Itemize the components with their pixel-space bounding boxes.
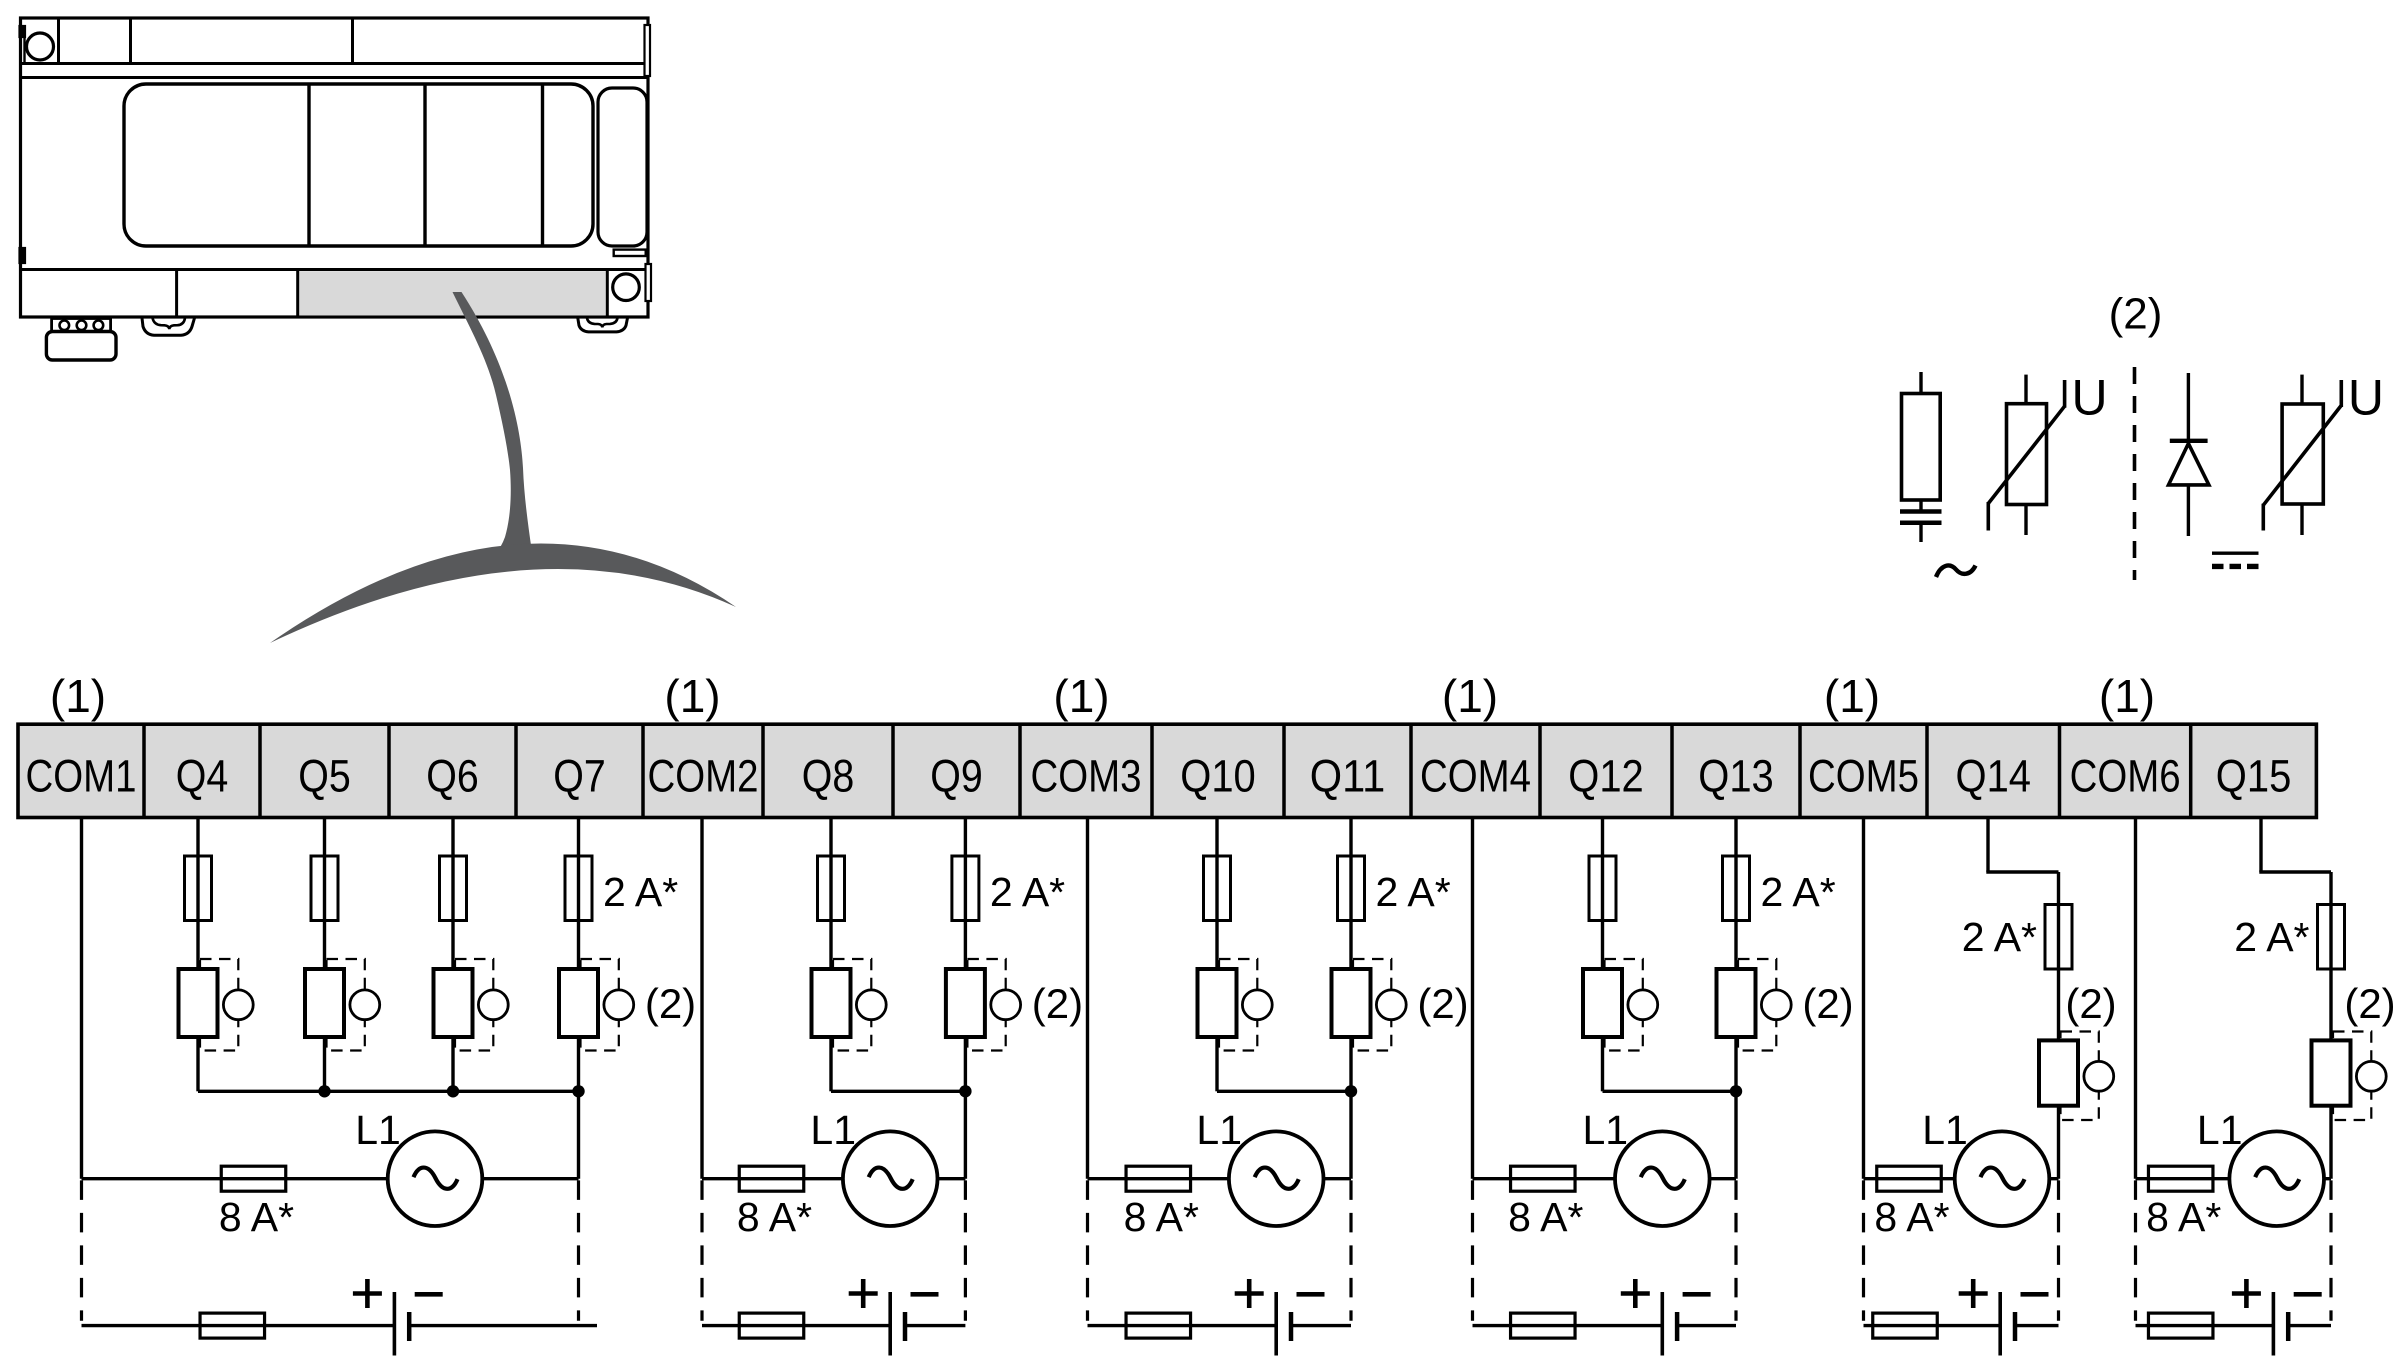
svg-text:Q10: Q10 <box>1180 751 1256 802</box>
svg-text:Q15: Q15 <box>2216 751 2292 802</box>
svg-text:COM4: COM4 <box>1420 751 1531 802</box>
svg-text:(1): (1) <box>664 670 720 722</box>
svg-text:(1): (1) <box>1053 670 1109 722</box>
svg-text:Q9: Q9 <box>930 751 983 802</box>
svg-text:L1: L1 <box>355 1107 401 1153</box>
svg-text:Q12: Q12 <box>1568 751 1644 802</box>
svg-text:L1: L1 <box>810 1107 856 1153</box>
svg-text:Q11: Q11 <box>1310 751 1386 802</box>
svg-text:Q8: Q8 <box>802 751 855 802</box>
svg-text:(1): (1) <box>1824 670 1880 722</box>
svg-text:(2): (2) <box>2065 980 2116 1027</box>
svg-text:2 A*: 2 A* <box>2234 914 2309 960</box>
svg-text:Q6: Q6 <box>426 751 479 802</box>
svg-text:U: U <box>2348 370 2384 426</box>
svg-text:8 A*: 8 A* <box>1508 1194 1583 1240</box>
svg-text:Q14: Q14 <box>1956 751 2032 802</box>
svg-text:(1): (1) <box>2099 670 2155 722</box>
svg-text:8 A*: 8 A* <box>737 1194 812 1240</box>
svg-text:COM2: COM2 <box>648 751 759 802</box>
svg-text:COM6: COM6 <box>2070 751 2181 802</box>
svg-text:2 A*: 2 A* <box>990 869 1065 915</box>
svg-text:COM3: COM3 <box>1031 751 1142 802</box>
svg-text:8 A*: 8 A* <box>1124 1194 1199 1240</box>
svg-text:8 A*: 8 A* <box>2146 1194 2221 1240</box>
svg-text:2 A*: 2 A* <box>1962 914 2037 960</box>
svg-text:L1: L1 <box>1196 1107 1242 1153</box>
svg-text:Q4: Q4 <box>176 751 229 802</box>
svg-text:Q5: Q5 <box>298 751 351 802</box>
svg-text:COM5: COM5 <box>1808 751 1919 802</box>
svg-text:Q7: Q7 <box>553 751 606 802</box>
svg-text:(2): (2) <box>2344 980 2395 1027</box>
svg-text:(1): (1) <box>50 670 106 722</box>
svg-text:Q13: Q13 <box>1698 751 1774 802</box>
svg-text:(2): (2) <box>645 980 696 1027</box>
svg-text:(2): (2) <box>1032 980 1083 1027</box>
svg-text:U: U <box>2071 370 2107 426</box>
svg-text:L1: L1 <box>1582 1107 1628 1153</box>
svg-text:(2): (2) <box>2109 290 2163 339</box>
svg-text:COM1: COM1 <box>26 751 137 802</box>
svg-text:8 A*: 8 A* <box>219 1194 294 1240</box>
svg-text:L1: L1 <box>1922 1107 1968 1153</box>
svg-text:2 A*: 2 A* <box>1376 869 1451 915</box>
svg-text:(1): (1) <box>1442 670 1498 722</box>
svg-text:L1: L1 <box>2197 1107 2243 1153</box>
svg-text:2 A*: 2 A* <box>603 869 678 915</box>
svg-text:(2): (2) <box>1417 980 1468 1027</box>
svg-text:2 A*: 2 A* <box>1761 869 1836 915</box>
svg-text:(2): (2) <box>1802 980 1853 1027</box>
svg-text:8 A*: 8 A* <box>1874 1194 1949 1240</box>
